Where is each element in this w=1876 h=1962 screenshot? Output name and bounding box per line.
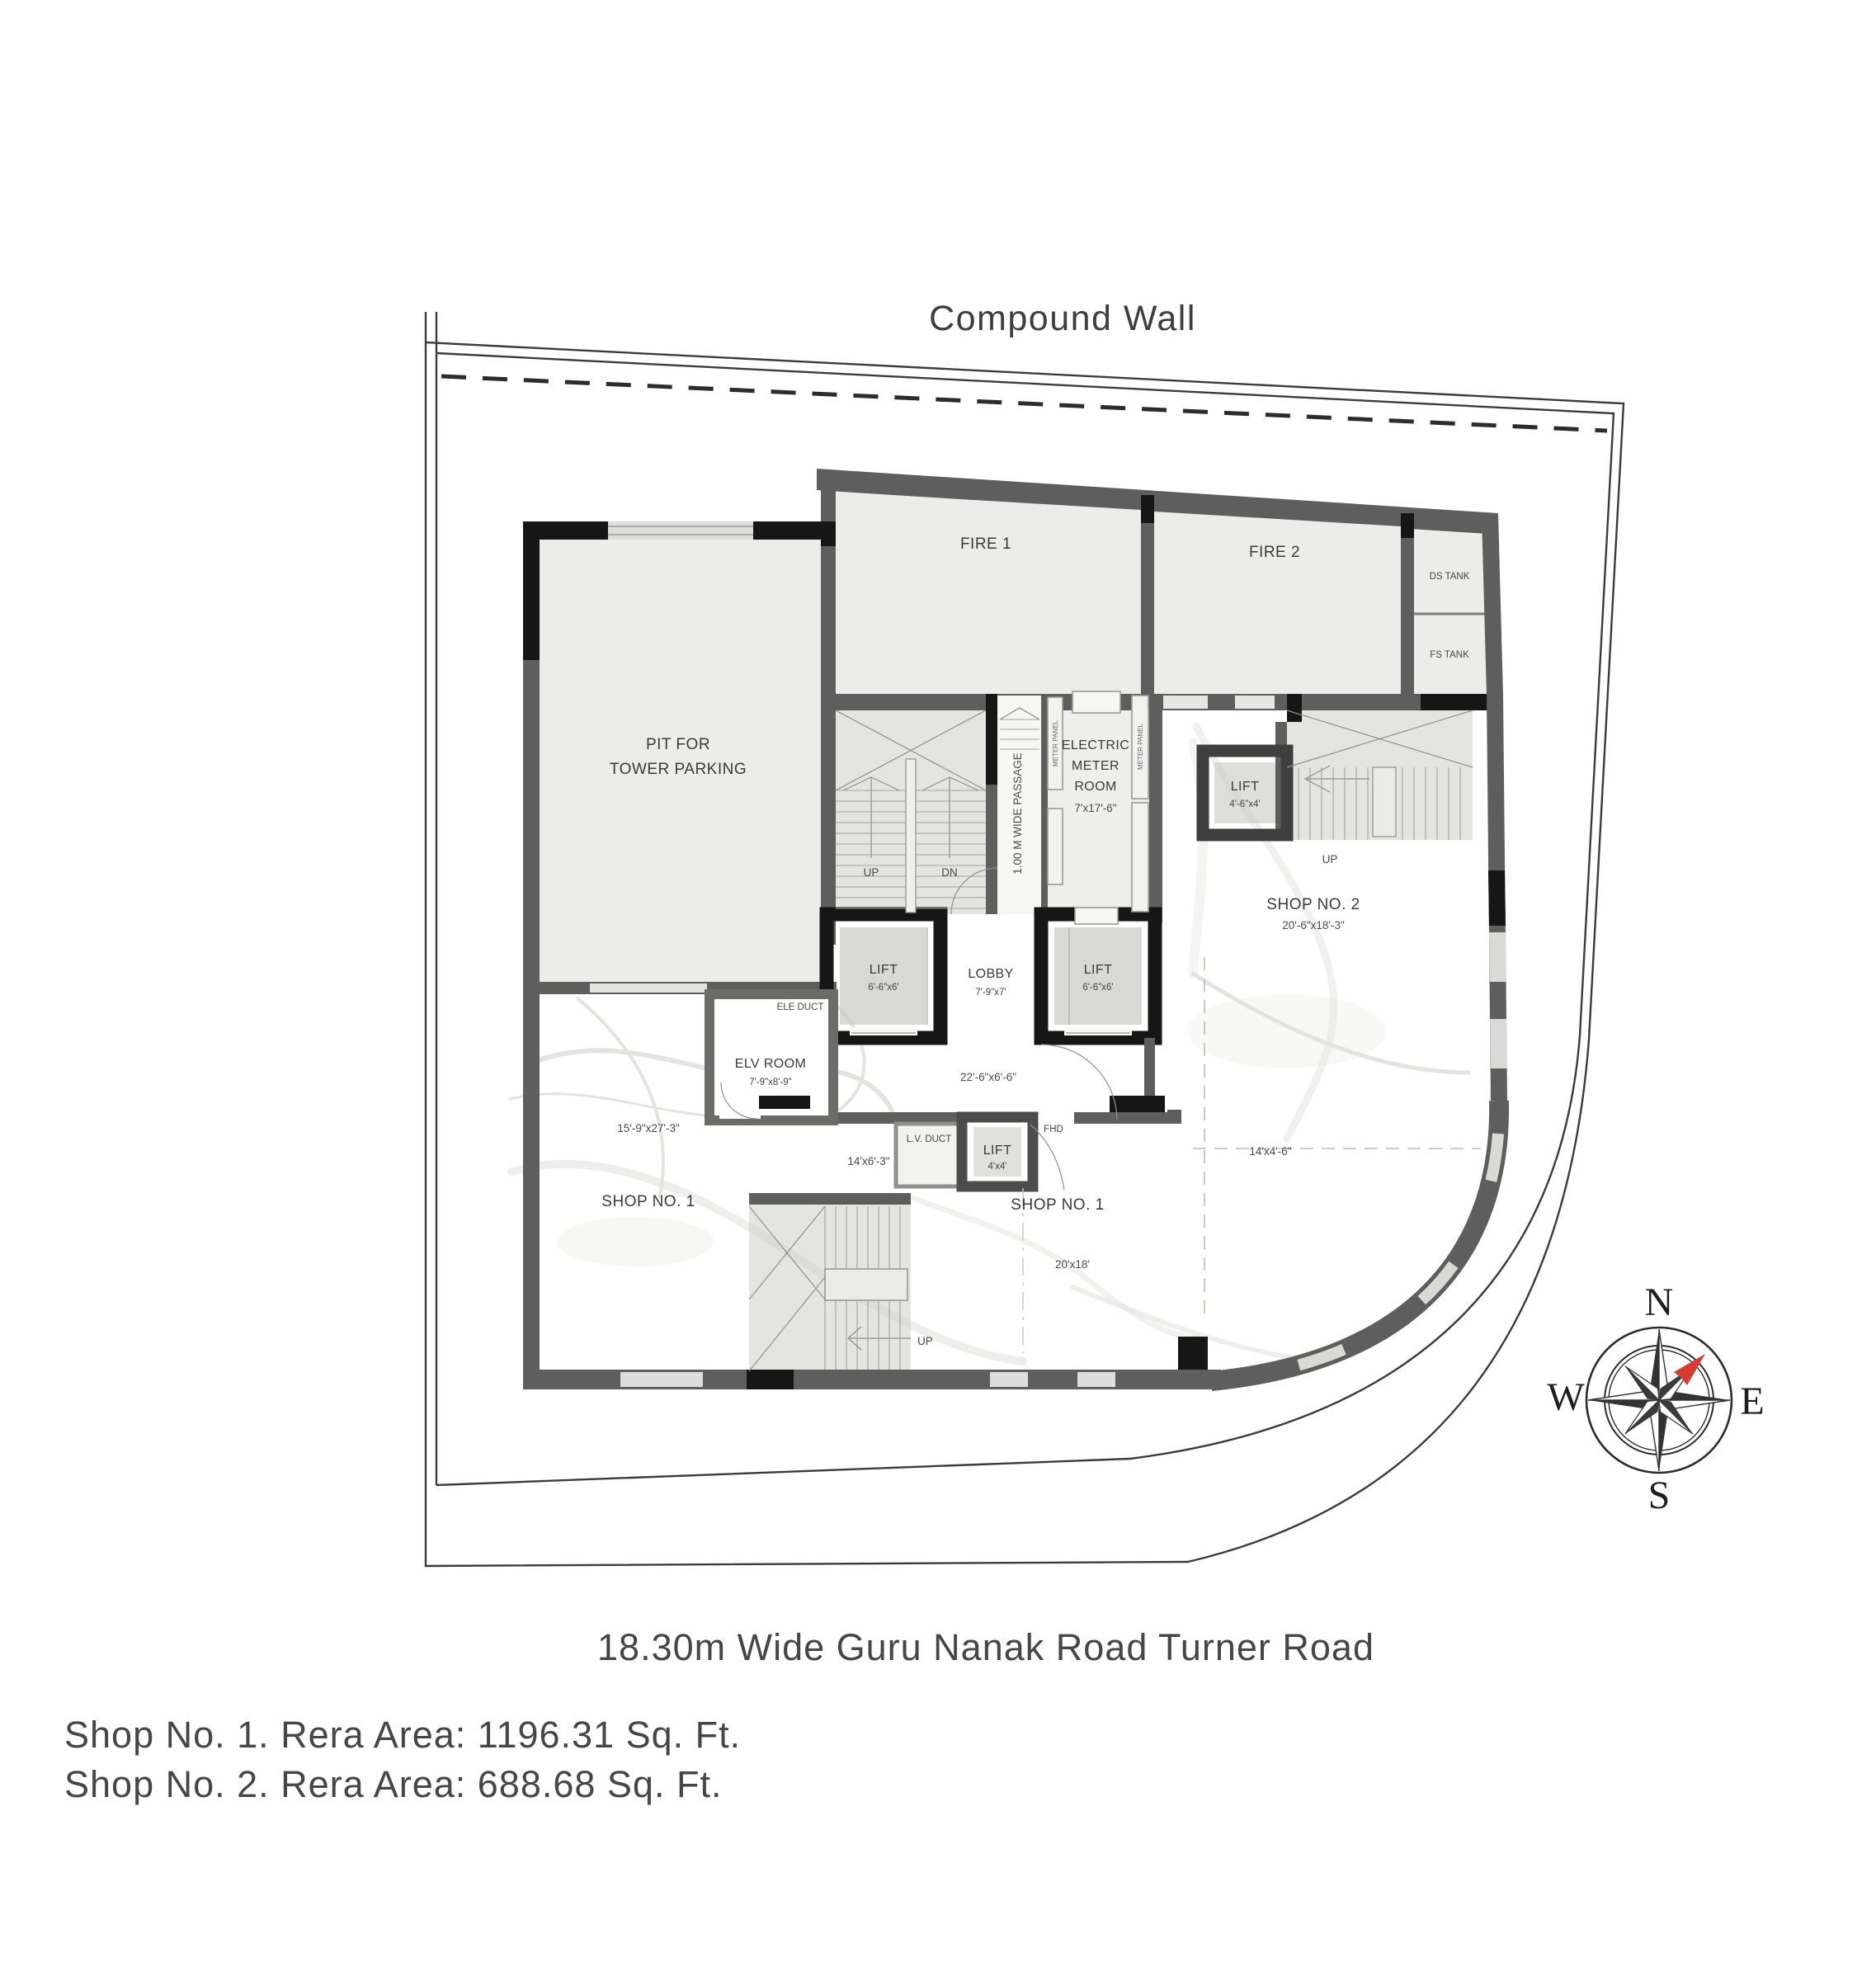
- fire1-room: [836, 492, 1141, 696]
- lift-shop2-label: LIFT: [1231, 780, 1260, 794]
- compass-e: E: [1740, 1380, 1764, 1423]
- meter-panel-label: METER PANEL: [1137, 724, 1144, 770]
- fire1-label: FIRE 1: [960, 535, 1011, 553]
- shop1-left-dim: 15'-9"x27'-3": [617, 1122, 680, 1134]
- elv-room-label: ELV ROOM: [735, 1057, 806, 1071]
- corridor-dim: 22'-6"x6'-6": [960, 1071, 1016, 1083]
- lift-small-dim: 4'x4': [988, 1162, 1007, 1172]
- shop2-area-label: Shop No. 2. Rera Area: 688.68 Sq. Ft.: [64, 1763, 722, 1805]
- lobby-dim: 7'-9"x7': [975, 988, 1006, 998]
- ele-duct-label: ELE DUCT: [777, 1002, 824, 1012]
- fire2-label: FIRE 2: [1249, 544, 1300, 561]
- compound-wall-label: Compound Wall: [929, 299, 1196, 338]
- lift-small-label: LIFT: [983, 1144, 1012, 1158]
- bottom-stair-up-label: UP: [917, 1335, 933, 1347]
- elv-room-dim: 7'-9"x8'-9": [749, 1078, 792, 1087]
- shop1-area-label: Shop No. 1. Rera Area: 1196.31 Sq. Ft.: [64, 1714, 741, 1756]
- emr-label-3: ROOM: [1074, 780, 1116, 794]
- passage-label: 1.00 M WIDE PASSAGE: [1011, 752, 1024, 875]
- lv-duct-label: L.V. DUCT: [907, 1134, 952, 1144]
- compass-rose: N E S W: [1547, 1280, 1764, 1517]
- shop2-dim: 20'-6"x18'-3": [1282, 919, 1345, 931]
- floor-plan-svg: METER PANEL METER PANEL Compound Wall PI…: [0, 0, 1876, 1962]
- emr-label-1: ELECTRIC: [1062, 738, 1129, 752]
- lift-right-label: LIFT: [1084, 963, 1113, 977]
- pit-room: [540, 538, 821, 982]
- dim-14-63: 14'x6'-3": [847, 1155, 889, 1167]
- shop2-dim2: 14'x4'-6": [1249, 1145, 1291, 1158]
- fhd-label: FHD: [1044, 1125, 1063, 1134]
- road-label: 18.30m Wide Guru Nanak Road Turner Road: [597, 1626, 1374, 1668]
- shop1-main-label: SHOP NO. 1: [1011, 1196, 1104, 1214]
- shop1-left-label: SHOP NO. 1: [601, 1193, 695, 1210]
- fs-tank-label: FS TANK: [1430, 650, 1469, 660]
- fire2-room: [1154, 512, 1401, 696]
- right-stair-up-label: UP: [1322, 853, 1338, 865]
- emr-label-2: METER: [1072, 759, 1119, 773]
- lift-right-dim: 6'-6"x6': [1082, 983, 1113, 993]
- lift-shop2-dim: 4'-6"x4': [1229, 799, 1260, 809]
- lift-left-label: LIFT: [870, 963, 898, 977]
- footer-text: 18.30m Wide Guru Nanak Road Turner Road …: [64, 1626, 1374, 1805]
- shop2-label: SHOP NO. 2: [1266, 896, 1360, 913]
- stair-dn-label: DN: [941, 866, 958, 879]
- floor-plan-page: METER PANEL METER PANEL Compound Wall PI…: [0, 0, 1876, 1962]
- meter-panel-label: METER PANEL: [1052, 720, 1059, 766]
- compass-w: W: [1547, 1375, 1585, 1419]
- compass-star: [1588, 1329, 1730, 1471]
- stair-up-label: UP: [864, 866, 879, 879]
- ds-tank-label: DS TANK: [1430, 572, 1470, 582]
- compass-s: S: [1648, 1474, 1671, 1517]
- emr-dim: 7'x17'-6": [1074, 802, 1116, 814]
- lobby-label: LOBBY: [968, 967, 1013, 981]
- pit-label-2: TOWER PARKING: [610, 761, 747, 778]
- shop1-main-dim: 20'x18': [1055, 1258, 1090, 1271]
- lift-left-dim: 6'-6"x6': [868, 983, 898, 993]
- compass-n: N: [1645, 1280, 1674, 1324]
- pit-label-1: PIT FOR: [646, 736, 710, 753]
